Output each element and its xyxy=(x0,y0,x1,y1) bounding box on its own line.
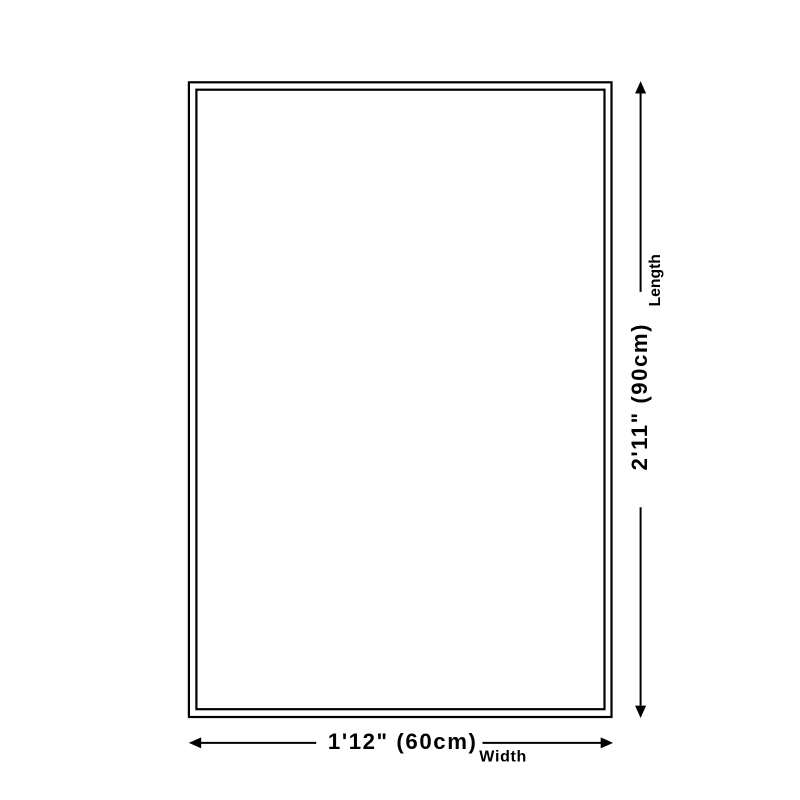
svg-text:2'11" (90cm): 2'11" (90cm) xyxy=(627,325,652,471)
svg-text:Length: Length xyxy=(647,254,664,306)
svg-text:Width: Width xyxy=(479,748,526,765)
svg-text:1'12" (60cm): 1'12" (60cm) xyxy=(328,729,476,754)
